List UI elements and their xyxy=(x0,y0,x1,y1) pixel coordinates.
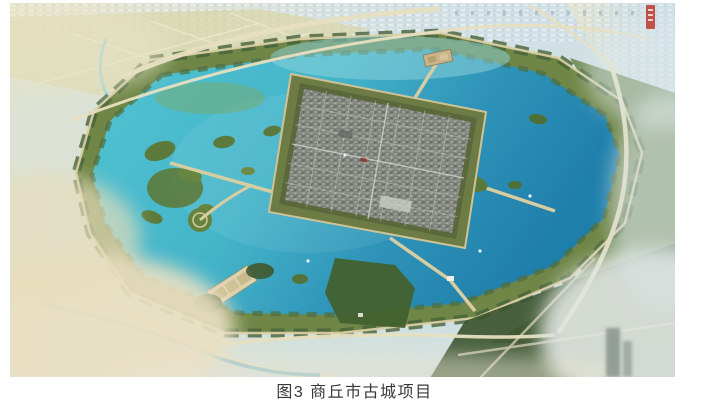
figure-caption: 图3 商丘市古城项目 xyxy=(0,382,709,404)
figure-container: 图3 商丘市古城项目 xyxy=(0,0,709,409)
red-seal-icon xyxy=(646,5,655,29)
aerial-rendering-svg xyxy=(10,3,675,377)
aerial-rendering-image xyxy=(10,3,675,377)
